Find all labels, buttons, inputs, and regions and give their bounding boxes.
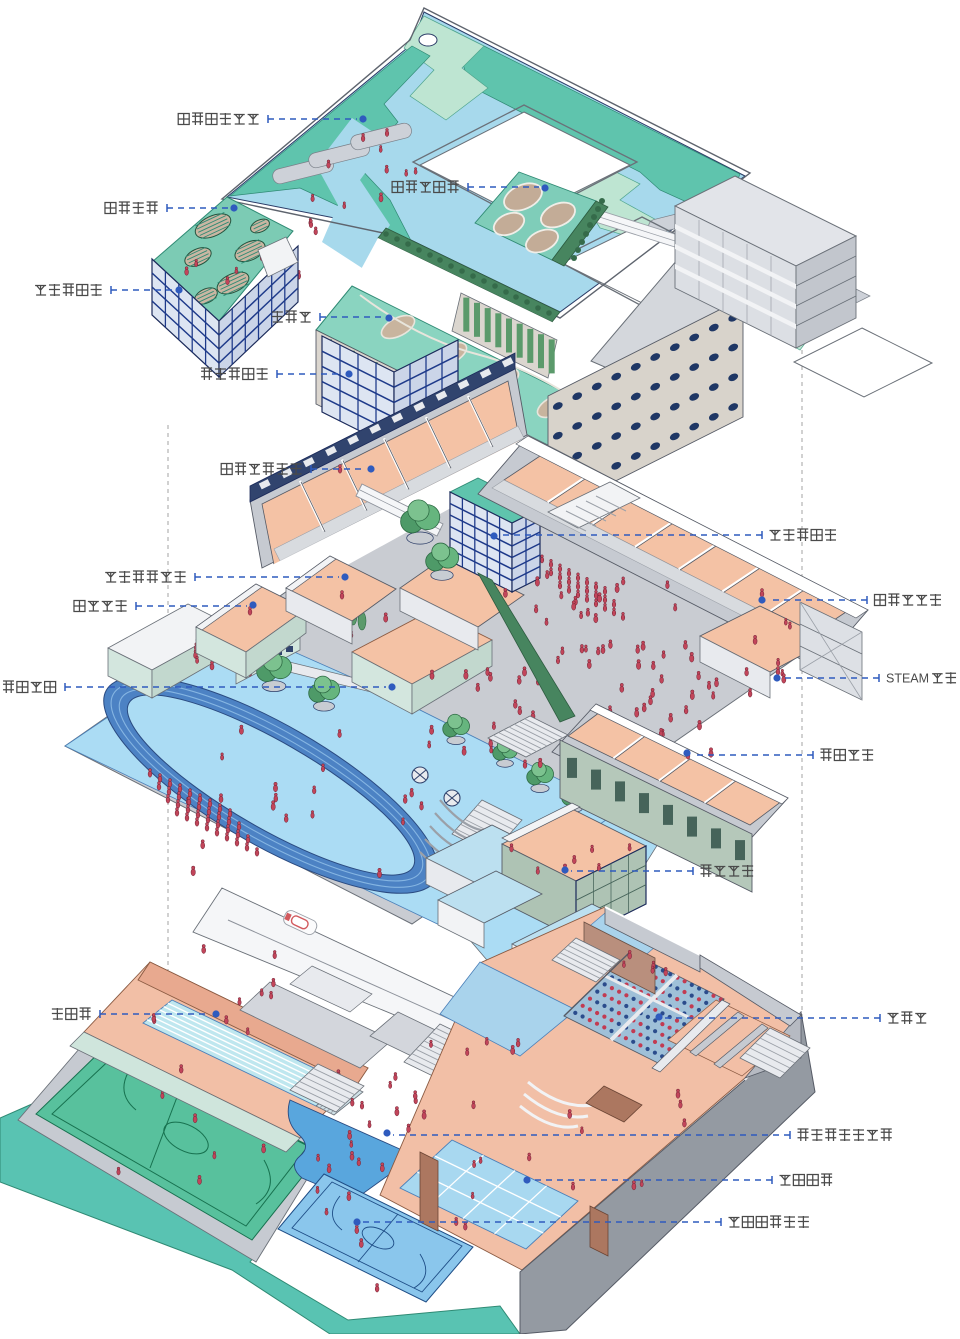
- svg-text:STEAM: STEAM: [886, 672, 929, 686]
